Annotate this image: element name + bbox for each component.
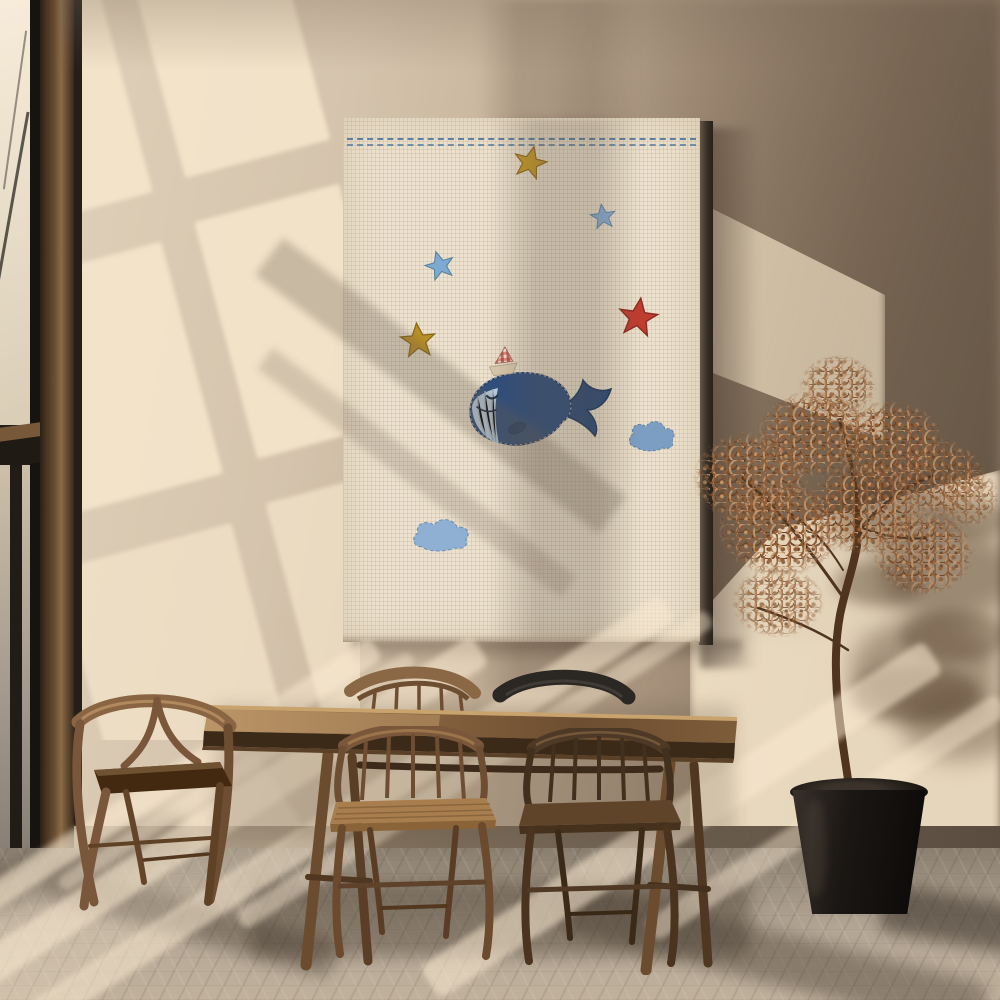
far-chair-dark — [500, 677, 628, 697]
artwork-side-edge — [699, 121, 713, 645]
artwork — [343, 118, 700, 642]
window-mullion — [30, 0, 40, 940]
pot-sheen — [804, 800, 826, 896]
wall-light-grid — [70, 0, 360, 740]
window-glass-upper — [0, 0, 30, 425]
spindle-chair-right — [518, 728, 683, 973]
pot — [788, 778, 930, 914]
far-chair-light — [350, 673, 475, 712]
window-lower-frame-bar — [10, 465, 22, 895]
leaf-shadow-dapple — [835, 560, 925, 606]
scene — [0, 0, 1000, 1000]
light-pane — [70, 242, 223, 519]
ceiling-shade — [60, 0, 1000, 70]
spindle-chair-left — [328, 726, 498, 966]
leaf-shadow-dapple — [930, 500, 1000, 540]
wishbone-chair — [60, 686, 255, 916]
light-grid-rotor — [70, 0, 360, 740]
art-vertical-shadow — [490, 118, 640, 642]
